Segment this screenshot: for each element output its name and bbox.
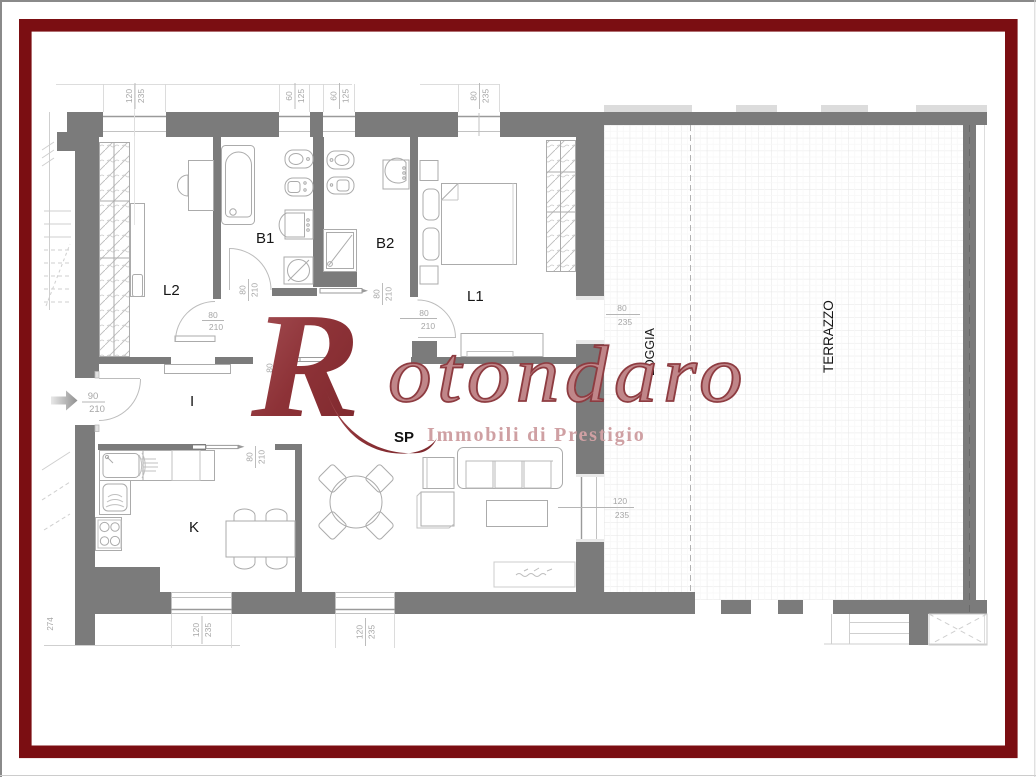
- svg-text:I: I: [190, 393, 194, 410]
- svg-text:TERRAZZO: TERRAZZO: [821, 300, 836, 373]
- svg-text:235: 235: [203, 623, 213, 637]
- svg-text:235: 235: [618, 317, 632, 327]
- svg-text:80: 80: [208, 310, 218, 320]
- svg-text:B2: B2: [376, 235, 394, 252]
- svg-text:210: 210: [421, 321, 435, 331]
- svg-text:80: 80: [617, 303, 627, 313]
- svg-text:210: 210: [257, 450, 267, 464]
- svg-text:L1: L1: [467, 288, 484, 305]
- svg-text:125: 125: [296, 89, 306, 103]
- svg-text:80: 80: [245, 452, 255, 462]
- svg-text:120: 120: [355, 625, 365, 639]
- svg-text:125: 125: [341, 89, 351, 103]
- svg-text:120: 120: [191, 623, 201, 637]
- svg-text:210: 210: [89, 404, 105, 415]
- svg-text:235: 235: [615, 510, 629, 520]
- svg-text:Immobili di Prestigio: Immobili di Prestigio: [427, 424, 646, 446]
- svg-text:235: 235: [367, 625, 377, 639]
- svg-text:235: 235: [136, 89, 146, 103]
- svg-text:80: 80: [372, 289, 382, 299]
- svg-text:60: 60: [284, 91, 294, 101]
- svg-text:otondaro: otondaro: [388, 331, 748, 419]
- svg-text:210: 210: [384, 287, 394, 301]
- svg-text:L2: L2: [163, 282, 180, 299]
- svg-text:80: 80: [469, 91, 479, 101]
- svg-text:K: K: [189, 519, 199, 536]
- svg-text:B1: B1: [256, 230, 274, 247]
- svg-text:60: 60: [329, 91, 339, 101]
- svg-text:90: 90: [88, 391, 99, 402]
- svg-text:80: 80: [238, 285, 248, 295]
- svg-text:120: 120: [613, 496, 627, 506]
- svg-text:210: 210: [209, 322, 223, 332]
- svg-text:235: 235: [481, 89, 491, 103]
- svg-text:SP: SP: [394, 429, 414, 446]
- svg-text:120: 120: [124, 89, 134, 103]
- svg-text:274: 274: [46, 617, 55, 631]
- svg-text:80: 80: [419, 308, 429, 318]
